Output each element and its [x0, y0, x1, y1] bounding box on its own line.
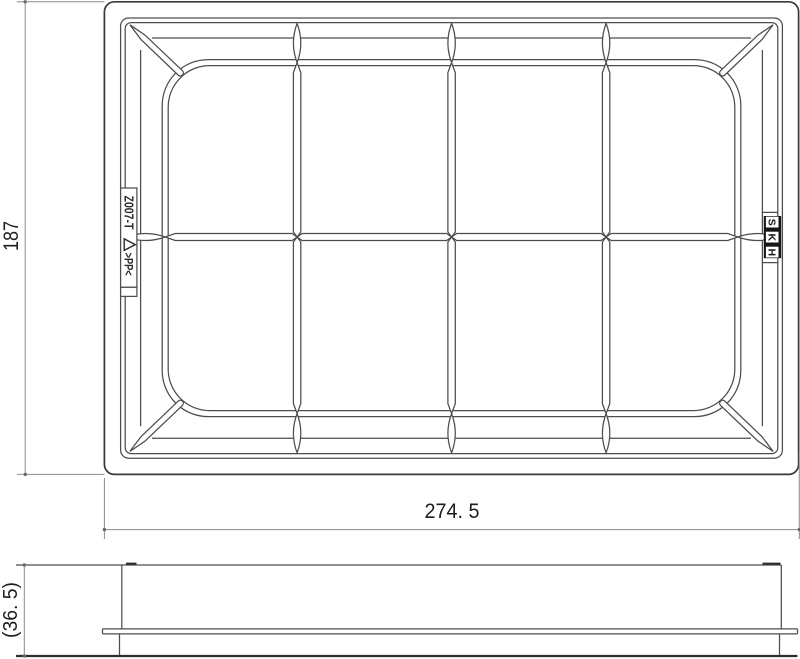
svg-text:K: K	[766, 234, 778, 242]
svg-text:187: 187	[0, 221, 23, 251]
svg-text:(36. 5): (36. 5)	[0, 582, 22, 638]
svg-text:Z007-T: Z007-T	[122, 196, 137, 230]
svg-text:274. 5: 274. 5	[425, 499, 480, 523]
svg-text:S: S	[766, 219, 778, 226]
svg-text:H: H	[766, 249, 778, 257]
svg-text:>PP<: >PP<	[122, 253, 136, 276]
